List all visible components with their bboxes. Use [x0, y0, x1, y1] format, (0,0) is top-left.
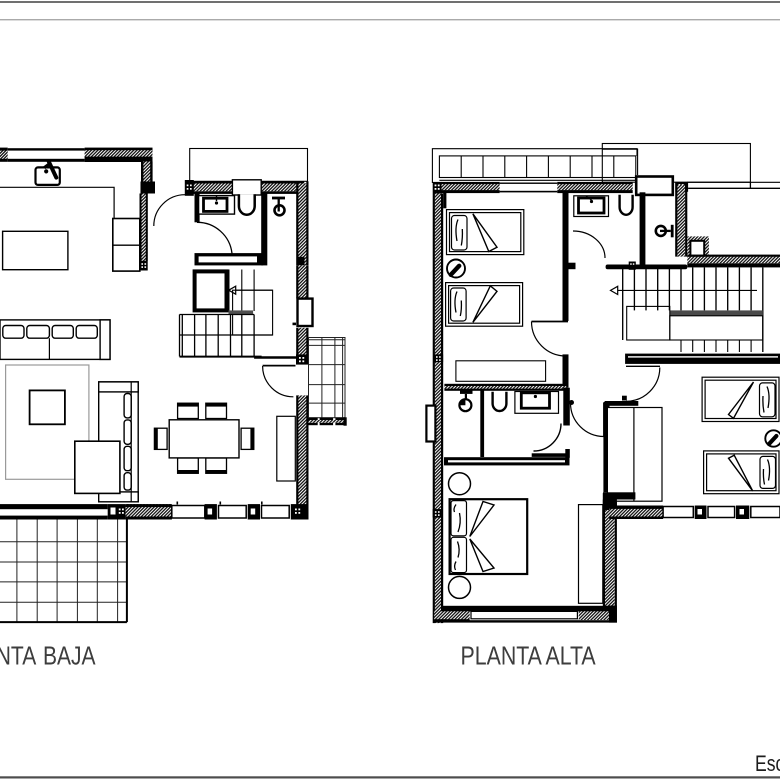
svg-text:PLANTA BAJA: PLANTA BAJA: [0, 642, 96, 670]
svg-text:Escala: Escala: [755, 752, 780, 776]
svg-text:PLANTA ALTA: PLANTA ALTA: [461, 642, 596, 670]
